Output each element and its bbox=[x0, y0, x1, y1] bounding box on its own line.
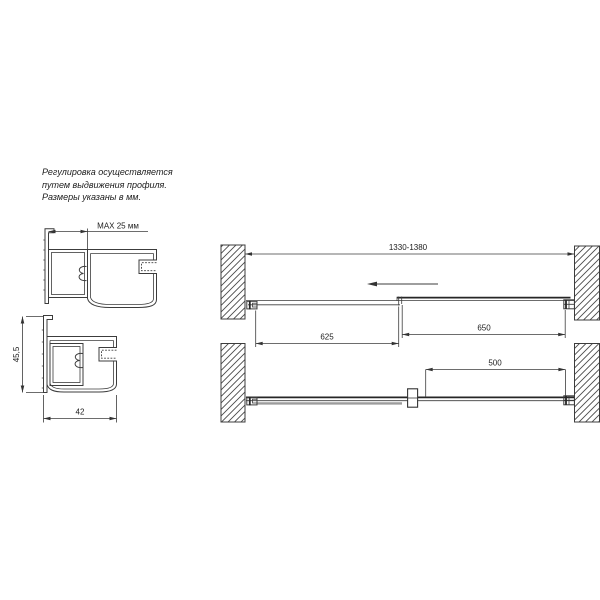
dimension-height: 45,5 bbox=[12, 317, 46, 393]
slot-serrations bbox=[102, 350, 117, 358]
opening-label: 500 bbox=[488, 359, 502, 368]
dimension-opening: 500 bbox=[426, 359, 566, 398]
door-assembly-closed bbox=[246, 297, 574, 306]
wall-block-right bbox=[575, 344, 600, 423]
wall-block-right bbox=[575, 246, 600, 320]
wall-block-left bbox=[221, 344, 245, 423]
fixed-panel-label: 625 bbox=[320, 333, 334, 342]
slide-direction-arrow bbox=[367, 282, 438, 287]
profile-box-outer bbox=[50, 344, 83, 386]
wall-bracket-right bbox=[564, 300, 575, 309]
sliding-profile-outline bbox=[47, 337, 117, 393]
technical-drawing-page: { "note": { "lines": [ "Регулировка осущ… bbox=[0, 0, 600, 600]
plan-view-open: 500 bbox=[221, 344, 600, 423]
dimension-max-25: MAX 25 мм bbox=[49, 222, 149, 252]
slot-serrations bbox=[142, 263, 157, 271]
dimension-door-panel: 650 bbox=[402, 324, 565, 337]
extension-lines bbox=[256, 305, 566, 347]
profile-box-inner bbox=[52, 253, 85, 295]
profile-box-inner bbox=[53, 347, 80, 383]
dimension-fixed-panel: 625 bbox=[256, 333, 399, 346]
height-label: 45,5 bbox=[12, 346, 21, 362]
dimension-overall-width: 1330-1380 bbox=[245, 243, 575, 256]
width-label: 42 bbox=[76, 408, 85, 417]
wall-flange bbox=[45, 229, 54, 304]
overall-width-label: 1330-1380 bbox=[389, 243, 428, 252]
door-handle bbox=[408, 389, 418, 407]
profile-cross-section-retracted: 45,5 42 bbox=[12, 316, 117, 423]
max-extension-label: MAX 25 мм bbox=[97, 222, 139, 231]
technical-drawing-canvas: MAX 25 мм 45,5 42 bbox=[0, 0, 600, 600]
wall-block-left bbox=[221, 245, 245, 319]
dimension-width: 42 bbox=[44, 395, 117, 423]
sliding-profile-outline bbox=[88, 250, 157, 308]
profile-cross-section-extended: MAX 25 мм bbox=[43, 222, 156, 308]
spring-clip bbox=[75, 353, 82, 367]
plan-view-closed: 1330-1380 bbox=[221, 243, 600, 347]
door-panel-label: 650 bbox=[477, 324, 491, 333]
sliding-profile-inner-wall bbox=[91, 254, 154, 305]
spring-clip bbox=[79, 266, 86, 280]
wall-flange bbox=[44, 316, 53, 393]
